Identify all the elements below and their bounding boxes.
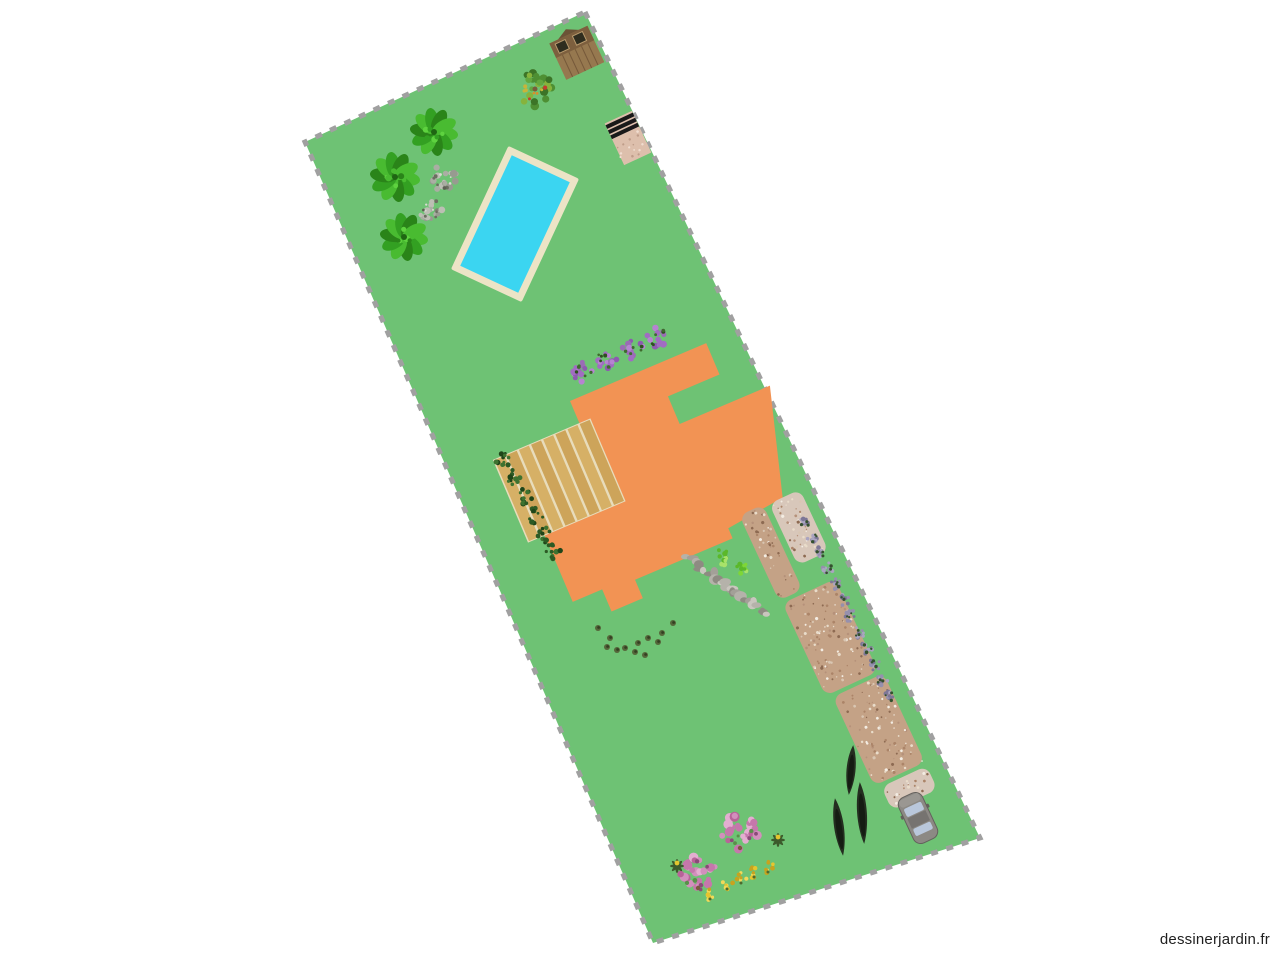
flower-blob (846, 619, 850, 623)
flower-top (776, 835, 781, 840)
leaf-speck (848, 616, 850, 618)
fruit-dot (533, 92, 536, 95)
bush-highlight (432, 209, 434, 211)
leaf-speck (874, 665, 877, 668)
leaf-speck (881, 679, 884, 682)
leaf-speck (629, 352, 632, 355)
leaf-speck (575, 370, 578, 373)
vine-blob (517, 475, 522, 480)
bush-highlight (425, 204, 427, 206)
flower-blob (891, 695, 894, 698)
flower-blob (647, 337, 653, 343)
stone (751, 602, 761, 608)
leaf-speck (850, 612, 852, 614)
leaf-speck (662, 329, 666, 333)
blossom-blob (704, 880, 712, 888)
leaf-speck (857, 629, 860, 632)
flower-blob (630, 355, 634, 359)
flower-blob (771, 862, 775, 866)
vine-blob (536, 534, 541, 539)
ground-plant-dot (632, 649, 638, 655)
leaf-speck (589, 371, 592, 374)
vine-blob (525, 490, 530, 495)
vine-blob (544, 526, 548, 530)
flower-blob (879, 683, 884, 688)
flower-blob (880, 674, 884, 678)
vine-blob (520, 487, 525, 492)
leaf-speck (855, 634, 857, 636)
foliage-blob (542, 95, 549, 102)
leaf-speck (597, 354, 600, 357)
fruit-dot (540, 88, 543, 91)
leaf-speck (607, 365, 611, 369)
bush-blob (743, 567, 747, 571)
stem-dot (740, 882, 743, 885)
watermark: dessinerjardin.fr (1160, 931, 1270, 948)
flower-blob (878, 660, 881, 663)
blossom-blob (689, 867, 695, 873)
blossom-blob (732, 813, 738, 819)
ground-plant-dot (670, 620, 676, 626)
flower-blob (766, 861, 770, 865)
leaf-speck (814, 534, 816, 536)
stem-dot (726, 888, 729, 891)
flower-blob (708, 888, 712, 892)
flower-blob (749, 868, 752, 871)
dot-core (634, 650, 637, 653)
flower-blob (735, 877, 740, 882)
ground-plant-dot (635, 640, 641, 646)
flower-blob (580, 360, 585, 365)
bush-highlight (439, 173, 442, 176)
flower-blob (806, 537, 810, 541)
foliage-blob (396, 239, 400, 243)
leaf-speck (603, 354, 607, 358)
stone (763, 612, 770, 617)
bush-blob (718, 554, 722, 558)
ground-plant-dot (659, 630, 665, 636)
leaf-speck (846, 615, 848, 617)
flower-blob (739, 876, 742, 879)
tree-center (431, 129, 437, 135)
leaf-speck (890, 699, 893, 702)
flower-blob (579, 378, 585, 384)
flower-blob (847, 596, 850, 599)
bush-blob (724, 559, 728, 563)
blossom-blob (677, 871, 684, 878)
leaf-speck (624, 350, 627, 353)
leaf-speck (877, 681, 880, 684)
dot-core (597, 626, 600, 629)
flower-blob (706, 892, 711, 897)
bush-blob (438, 207, 445, 214)
stem-dot (753, 876, 756, 879)
flower-blob (753, 866, 757, 870)
leaf-speck (749, 829, 753, 833)
vine-blob (501, 463, 505, 467)
leaf-speck (640, 345, 644, 349)
bush-highlight (450, 176, 452, 178)
stem-dot (709, 898, 712, 901)
bush-speck (436, 183, 439, 186)
flower-blob (626, 345, 632, 351)
leaf-speck (857, 633, 860, 636)
bush-blob (443, 171, 449, 177)
leaf-speck (816, 550, 819, 553)
flower-blob (582, 366, 587, 371)
vine-blob (510, 468, 514, 472)
bush-blob (443, 181, 448, 186)
flower-blob (851, 609, 855, 613)
leaf-speck (890, 691, 893, 694)
flower-blob (721, 880, 725, 884)
blossom-blob (725, 828, 734, 837)
vine-blob (550, 542, 555, 547)
vine-blob (511, 483, 515, 487)
leaf-speck (695, 859, 699, 863)
tree-center (401, 234, 407, 240)
leaf-speck (870, 648, 872, 650)
leaf-speck (654, 333, 657, 336)
vine-blob (508, 474, 513, 479)
vine-blob (519, 491, 522, 494)
leaf-speck (584, 375, 587, 378)
foliage-blob (440, 132, 444, 136)
ground-plant-dot (614, 647, 620, 653)
vine-blob (545, 550, 548, 553)
foliage-blob (546, 76, 553, 83)
bush-blob (424, 207, 431, 214)
foliage-blob (527, 73, 533, 79)
leaf-speck (640, 349, 643, 352)
ground-plant-dot (607, 635, 613, 641)
vine-blob (541, 532, 545, 536)
bush-blob (738, 571, 743, 576)
blossom-blob (750, 819, 757, 826)
flower-top (675, 861, 680, 866)
ground-plant-dot (655, 639, 661, 645)
leaf-speck (599, 360, 602, 363)
leaf-speck (811, 540, 814, 543)
bush-speck (424, 215, 427, 218)
flower-blob (660, 341, 667, 348)
bush-speck (422, 209, 425, 212)
leaf-speck (747, 836, 751, 840)
flower-blob (834, 577, 837, 580)
dot-core (616, 648, 619, 651)
flower-blob (730, 881, 735, 886)
vine-blob (548, 530, 552, 534)
trunk-dot (738, 846, 742, 850)
flower-blob (752, 871, 755, 874)
flower-blob (827, 561, 830, 564)
leaf-speck (835, 583, 838, 586)
stem-dot (767, 871, 770, 874)
vine-blob (503, 454, 507, 458)
flower-blob (610, 359, 615, 364)
foliage-blob (391, 168, 396, 173)
flower-blob (816, 545, 821, 550)
leaf-speck (829, 568, 832, 571)
yellow-top-plant[interactable] (670, 859, 684, 873)
leaf-speck (632, 346, 635, 349)
leaf-speck (578, 364, 581, 367)
dot-core (609, 636, 612, 639)
leaf-speck (821, 554, 824, 557)
vine-blob (531, 509, 535, 513)
dot-core (637, 641, 640, 644)
dot-core (606, 645, 609, 648)
leaf-speck (685, 881, 689, 885)
leaf-speck (825, 572, 828, 575)
bush-blob (722, 551, 727, 556)
blossom-blob (735, 823, 740, 828)
foliage-blob (521, 98, 528, 105)
leaf-speck (807, 524, 810, 527)
ground-plant-dot (604, 644, 610, 650)
dot-core (624, 646, 627, 649)
bush-speck (432, 177, 435, 180)
leaf-speck (754, 832, 758, 836)
leaf-speck (843, 598, 846, 601)
yellow-top-plant[interactable] (771, 833, 785, 847)
leaf-speck (840, 596, 842, 598)
foliage-blob (531, 98, 538, 105)
vine-blob (541, 527, 544, 530)
bush-blob (717, 548, 721, 552)
vine-blob (524, 501, 528, 505)
fruit-dot (528, 97, 531, 100)
ground-plant-dot (595, 625, 601, 631)
bush-speck (434, 216, 437, 219)
dot-core (647, 636, 650, 639)
fruit-dot (536, 92, 539, 95)
flower-blob (819, 555, 822, 558)
foliage-blob (385, 175, 392, 182)
fruit-dot (523, 89, 526, 92)
flower-blob (801, 517, 806, 522)
foliage-blob (393, 183, 398, 188)
foliage-blob (537, 80, 543, 86)
leaf-speck (733, 841, 737, 845)
blossom-blob (701, 868, 708, 875)
foliage-blob (401, 227, 406, 232)
dot-core (644, 653, 647, 656)
foliage-blob (408, 238, 412, 242)
flower-blob (744, 877, 748, 881)
foliage-blob (435, 135, 440, 140)
vine-blob (507, 480, 510, 483)
leaf-speck (800, 523, 803, 526)
flower-blob (578, 371, 584, 377)
fruit-dot (523, 84, 527, 88)
tree-center (392, 174, 398, 180)
dot-core (661, 631, 664, 634)
leaf-speck (693, 878, 698, 883)
garden-plan-page: dessinerjardin.fr (0, 0, 1280, 960)
leaf-speck (821, 551, 824, 554)
bush-blob (452, 178, 459, 185)
bush-blob (429, 199, 434, 204)
vine-blob (494, 460, 499, 465)
vine-blob (529, 519, 535, 525)
dot-core (657, 640, 660, 643)
vine-blob (550, 550, 554, 554)
fruit-dot (543, 86, 547, 90)
ground-plant-dot (645, 635, 651, 641)
bush-blob (434, 186, 440, 192)
flower-blob (853, 615, 856, 618)
leaf-speck (652, 343, 655, 346)
vine-blob (537, 512, 540, 515)
foliage-blob (424, 135, 430, 141)
foliage-blob (398, 173, 404, 179)
bush-blob (419, 213, 423, 217)
flower-blob (770, 866, 775, 871)
bush-speck (434, 199, 438, 203)
vine-blob (543, 537, 547, 541)
leaf-speck (737, 835, 740, 838)
leaf-speck (600, 355, 603, 358)
trunk-dot (533, 87, 538, 92)
dot-core (672, 621, 675, 624)
blossom-blob (719, 833, 725, 839)
vine-blob (506, 462, 511, 467)
leaf-speck (805, 520, 808, 523)
leaf-speck (730, 838, 734, 842)
leaf-speck (837, 585, 841, 589)
foliage-blob (533, 73, 539, 79)
ground-plant-dot (622, 645, 628, 651)
flower-blob (886, 679, 890, 683)
flower-blob (841, 603, 845, 607)
leaf-speck (872, 659, 875, 662)
flower-blob (855, 626, 858, 629)
leaf-speck (865, 650, 869, 654)
bush-speck (443, 186, 447, 190)
trunk-dot (696, 886, 700, 890)
flower-blob (872, 668, 875, 671)
bush-speck (435, 210, 438, 213)
flower-blob (861, 629, 864, 632)
bush-blob (737, 562, 742, 567)
bush-blob (744, 563, 747, 566)
ground-plant-dot (642, 652, 648, 658)
vine-blob (507, 456, 511, 460)
flower-blob (830, 580, 833, 583)
flower-blob (822, 568, 826, 572)
leaf-speck (705, 865, 709, 869)
vine-blob (529, 496, 534, 501)
bush-highlight (425, 210, 427, 212)
flower-blob (737, 873, 741, 877)
bush-highlight (449, 182, 452, 185)
garden-plan-canvas (0, 0, 1280, 960)
blossom-blob (753, 831, 762, 840)
vine-blob (522, 496, 526, 500)
vine-blob (550, 556, 555, 561)
vine-blob (558, 548, 563, 553)
flower-blob (888, 694, 891, 697)
leaf-speck (885, 694, 887, 696)
bush-blob (434, 165, 440, 171)
vine-blob (541, 516, 544, 519)
leaf-speck (829, 564, 832, 567)
leaf-speck (863, 643, 866, 646)
flower-blob (846, 602, 850, 606)
